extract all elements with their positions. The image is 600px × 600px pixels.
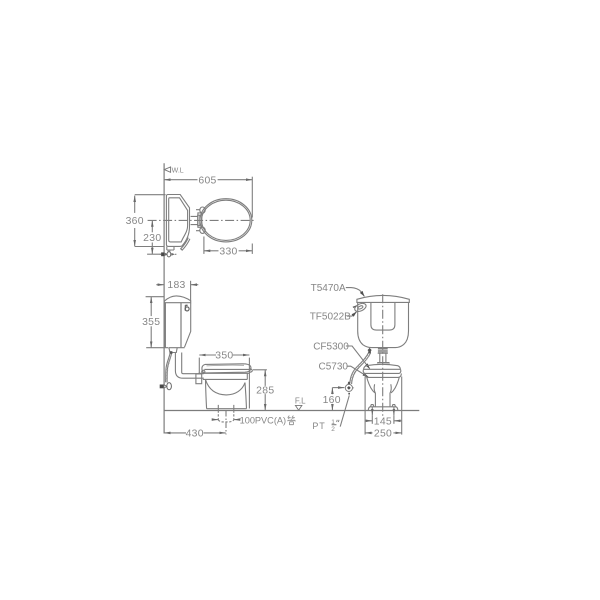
svg-text:230: 230 bbox=[143, 233, 161, 244]
svg-text:C5730: C5730 bbox=[319, 362, 349, 373]
svg-text:145: 145 bbox=[374, 416, 392, 427]
svg-text:CF5300: CF5300 bbox=[313, 341, 349, 352]
svg-text:355: 355 bbox=[142, 317, 160, 328]
svg-text:330: 330 bbox=[219, 247, 237, 258]
svg-text:W.L: W.L bbox=[172, 168, 184, 175]
svg-text:430: 430 bbox=[186, 428, 204, 439]
svg-text:285: 285 bbox=[256, 386, 274, 397]
svg-text:160: 160 bbox=[323, 395, 341, 406]
svg-text:250: 250 bbox=[374, 428, 392, 439]
svg-text:100PVC(A): 100PVC(A) bbox=[240, 415, 286, 425]
svg-text:T5470A: T5470A bbox=[311, 283, 346, 294]
svg-text:F.L: F.L bbox=[295, 396, 306, 405]
svg-text:TF5022B: TF5022B bbox=[310, 312, 351, 323]
svg-text:605: 605 bbox=[198, 175, 216, 186]
svg-text:360: 360 bbox=[126, 216, 144, 227]
svg-text:350: 350 bbox=[215, 351, 233, 362]
svg-text:PT: PT bbox=[312, 421, 325, 431]
svg-text:2: 2 bbox=[331, 426, 335, 433]
svg-text:183: 183 bbox=[167, 280, 185, 291]
